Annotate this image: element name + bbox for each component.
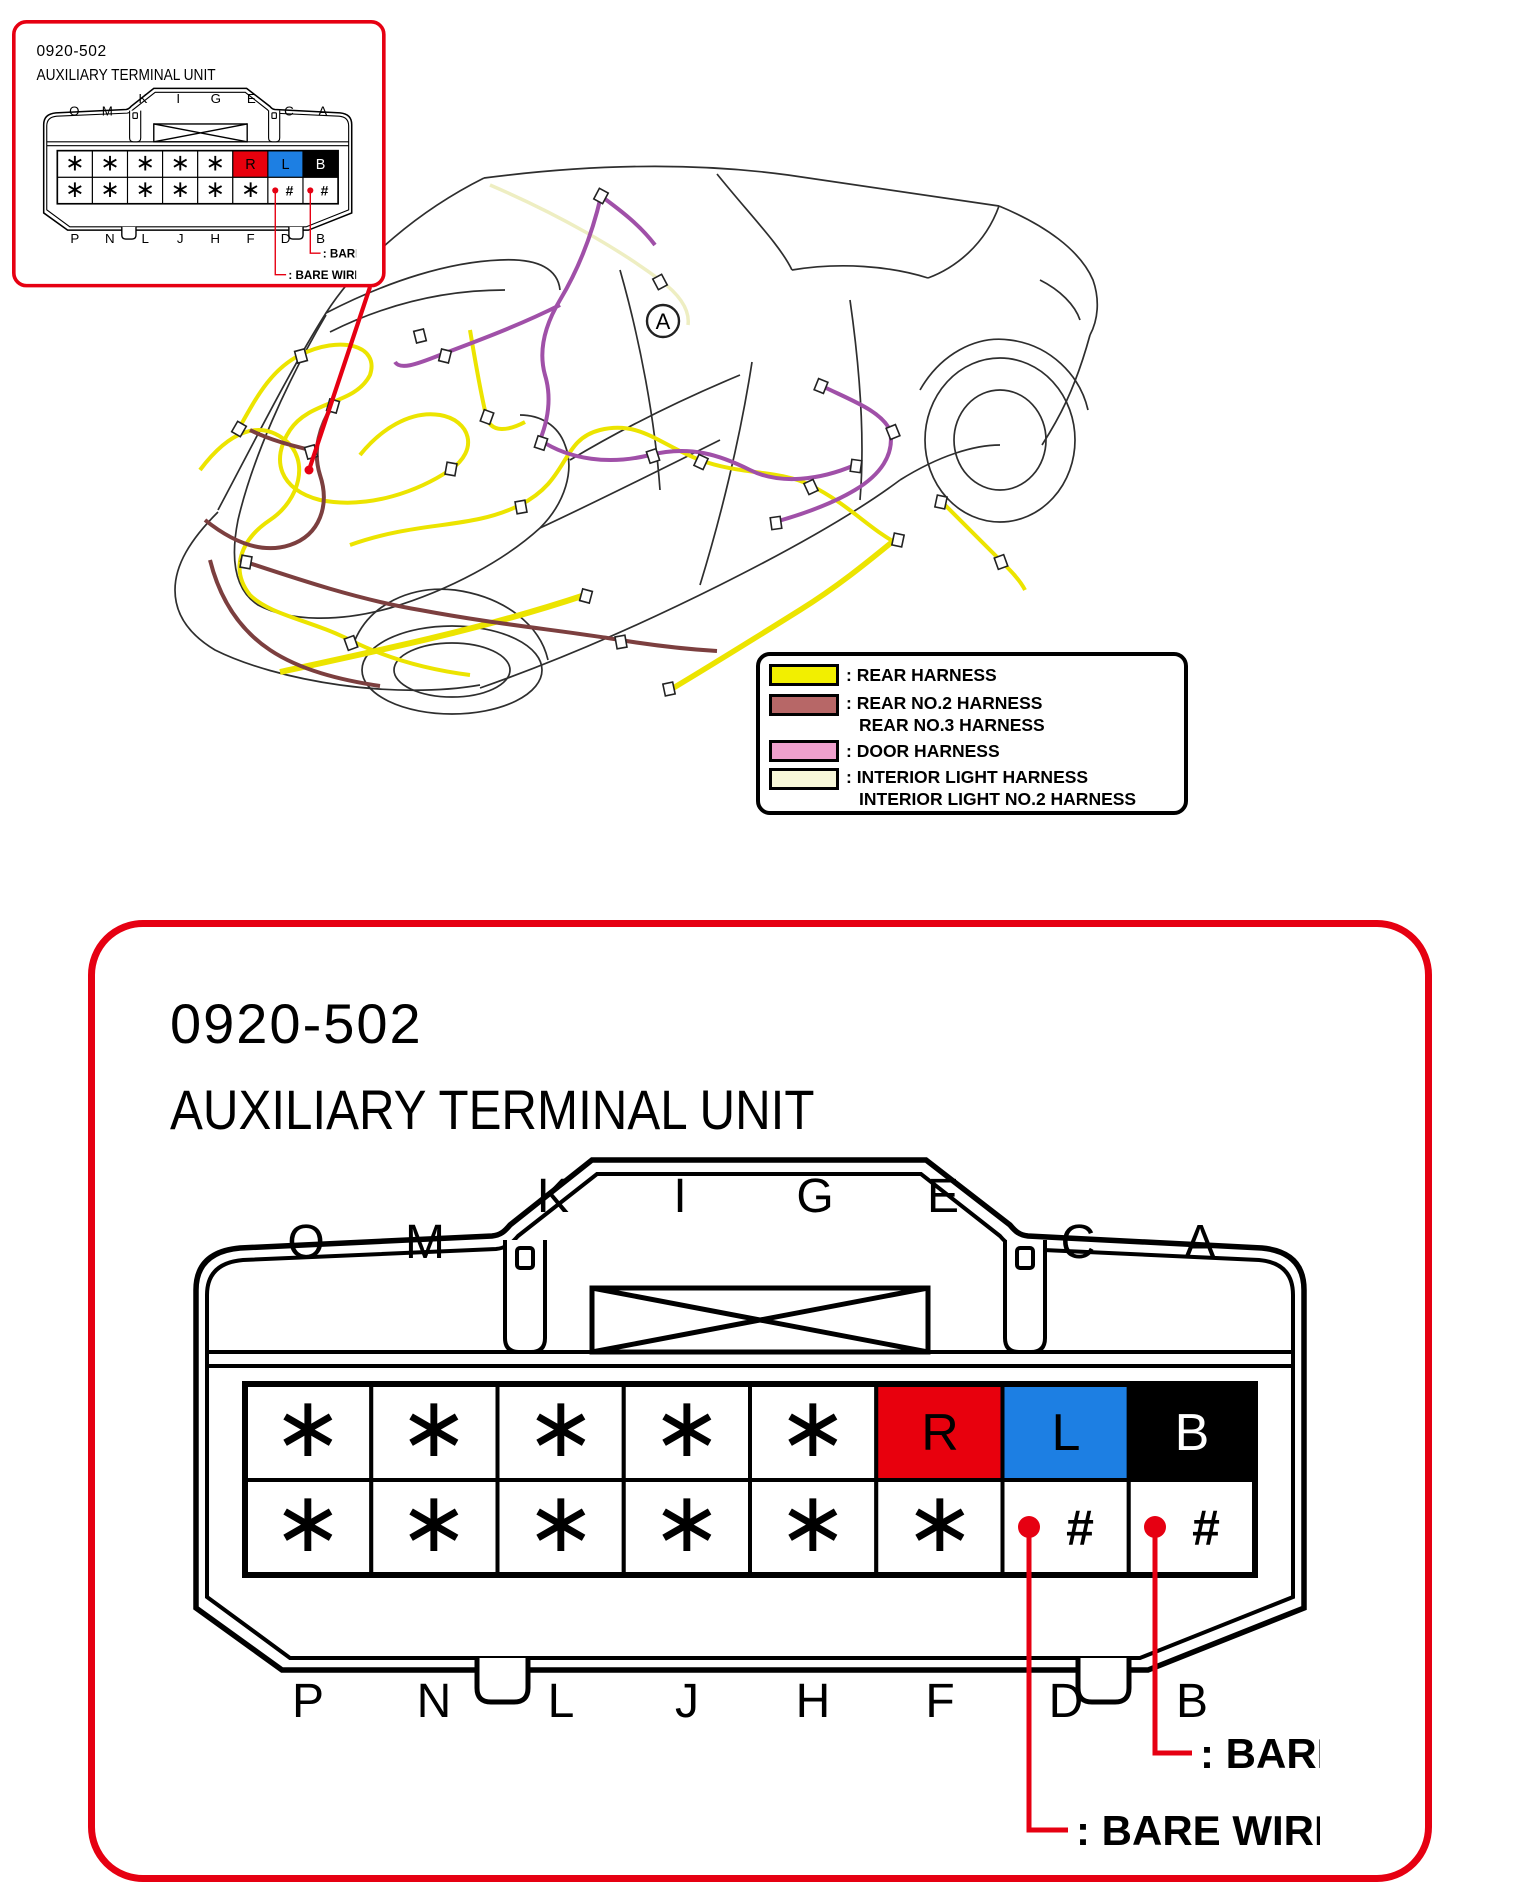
svg-text:L: L [548, 1675, 575, 1728]
legend-swatch-door-harness [769, 740, 839, 762]
svg-text:E: E [927, 1170, 959, 1223]
svg-text:∗: ∗ [399, 1473, 469, 1571]
svg-text:K: K [537, 1170, 569, 1223]
terminal-label-l: L [282, 157, 290, 173]
legend-label-rear-no2-harness: : REAR NO.2 HARNESS [846, 692, 1042, 714]
svg-text:A: A [1184, 1216, 1216, 1269]
svg-text:F: F [925, 1675, 954, 1728]
bare-wire-note-d: : BARE WIRE [1076, 1807, 1320, 1854]
svg-text:#: # [321, 182, 329, 198]
callout-a-label: A [656, 309, 671, 334]
svg-text:∗: ∗ [399, 1378, 469, 1476]
svg-text:O: O [287, 1216, 324, 1269]
svg-text:∗: ∗ [170, 149, 190, 177]
bare-wire-note-b: : BARE WIRE [1200, 1730, 1320, 1777]
svg-text:B: B [316, 231, 325, 246]
terminal-label-b: B [1175, 1404, 1210, 1462]
svg-text:P: P [292, 1675, 324, 1728]
svg-text:∗: ∗ [905, 1473, 975, 1571]
rear-no2-harness-path [205, 405, 717, 686]
auxiliary-terminal-unit-panel: 0920-502 AUXILIARY TERMINAL UNIT [12, 20, 386, 287]
legend-swatch-rear-harness [769, 664, 839, 686]
svg-text:J: J [675, 1675, 699, 1728]
svg-text:∗: ∗ [526, 1473, 596, 1571]
bare-wire-note-d: : BARE WIRE [288, 269, 356, 282]
svg-text:C: C [1061, 1216, 1096, 1269]
legend-label-interior-light-harness: : INTERIOR LIGHT HARNESS [846, 766, 1088, 788]
terminal-label-l: L [1052, 1404, 1081, 1462]
unit-code: 0920-502 [36, 41, 106, 59]
bare-wire-dot-d [1018, 1516, 1040, 1538]
terminal-grid: ∗ ∗ ∗ ∗ ∗ R L B ∗ ∗ ∗ ∗ ∗ ∗ # # [57, 149, 338, 204]
terminal-label-r: R [245, 157, 255, 173]
svg-text:∗: ∗ [273, 1473, 343, 1571]
svg-text:F: F [246, 231, 254, 246]
svg-text:∗: ∗ [135, 149, 155, 177]
svg-text:∗: ∗ [65, 175, 85, 203]
svg-text:∗: ∗ [100, 175, 120, 203]
svg-text:N: N [105, 231, 115, 246]
svg-text:D: D [281, 231, 291, 246]
svg-text:G: G [211, 91, 221, 106]
svg-text:C: C [284, 104, 294, 119]
svg-text:∗: ∗ [135, 175, 155, 203]
connector-pinout-diagram: ∗ ∗ ∗ ∗ ∗ R L B ∗ ∗ ∗ ∗ ∗ ∗ # # O [34, 80, 356, 289]
svg-text:∗: ∗ [778, 1473, 848, 1571]
svg-text:I: I [176, 91, 180, 106]
svg-text:#: # [1066, 1500, 1094, 1556]
svg-text:∗: ∗ [652, 1378, 722, 1476]
svg-text:M: M [405, 1216, 445, 1269]
unit-code: 0920-502 [170, 991, 423, 1056]
bare-wire-dot-d [272, 187, 278, 193]
legend-label-rear-harness: : REAR HARNESS [846, 664, 997, 686]
interior-light-harness-path [490, 185, 688, 325]
legend-label-interior-light-no2-harness: INTERIOR LIGHT NO.2 HARNESS [859, 788, 1136, 810]
svg-text:E: E [247, 91, 256, 106]
bare-wire-note-b: : BARE WIRE [323, 247, 356, 260]
svg-text:O: O [69, 104, 79, 119]
terminal-label-b: B [316, 157, 326, 173]
legend-label-door-harness: : DOOR HARNESS [846, 740, 1000, 762]
door-harness-path [395, 196, 891, 522]
svg-text:M: M [102, 104, 113, 119]
bare-wire-dot-b [1144, 1516, 1166, 1538]
harness-color-legend: : REAR HARNESS : REAR NO.2 HARNESS REAR … [756, 652, 1188, 815]
bare-wire-dot-b [307, 187, 313, 193]
svg-text:∗: ∗ [65, 149, 85, 177]
legend-label-rear-no3-harness: REAR NO.3 HARNESS [859, 714, 1045, 736]
auxiliary-terminal-unit-panel-mini: 0920-502 AUXILIARY TERMINAL UNIT [12, 20, 386, 287]
svg-text:#: # [1192, 1500, 1220, 1556]
svg-text:#: # [286, 182, 294, 198]
svg-text:P: P [70, 231, 79, 246]
svg-text:G: G [796, 1170, 833, 1223]
svg-text:A: A [318, 104, 327, 119]
svg-text:∗: ∗ [652, 1473, 722, 1571]
terminal-grid: ∗ ∗ ∗ ∗ ∗ R L B ∗ ∗ ∗ ∗ ∗ ∗ # # [245, 1378, 1255, 1575]
svg-text:∗: ∗ [241, 175, 261, 203]
svg-text:N: N [417, 1675, 452, 1728]
svg-text:∗: ∗ [273, 1378, 343, 1476]
location-leader-line [305, 287, 371, 475]
callout-a: A [647, 305, 679, 337]
legend-swatch-interior-light-harness [769, 768, 839, 790]
svg-text:L: L [141, 231, 148, 246]
svg-text:I: I [673, 1170, 686, 1223]
svg-text:∗: ∗ [526, 1378, 596, 1476]
svg-text:∗: ∗ [170, 175, 190, 203]
svg-text:D: D [1049, 1675, 1084, 1728]
svg-text:J: J [177, 231, 184, 246]
svg-text:∗: ∗ [205, 175, 225, 203]
svg-text:∗: ∗ [100, 149, 120, 177]
svg-text:B: B [1176, 1675, 1208, 1728]
auxiliary-terminal-unit-panel: 0920-502 AUXILIARY TERMINAL UNIT [88, 920, 1432, 1882]
svg-text:H: H [796, 1675, 831, 1728]
svg-text:H: H [210, 231, 220, 246]
terminal-label-r: R [921, 1404, 959, 1462]
svg-text:∗: ∗ [205, 149, 225, 177]
svg-text:K: K [138, 91, 147, 106]
connector-pinout-diagram: ∗ ∗ ∗ ∗ ∗ R L B ∗ ∗ ∗ ∗ ∗ ∗ # # O [160, 1130, 1320, 1880]
legend-swatch-rear-no2-harness [769, 694, 839, 716]
rear-harness-path [200, 330, 1025, 690]
service-manual-page: A : REAR HARNESS : REAR NO.2 HARNESS REA… [0, 0, 1518, 1902]
svg-text:∗: ∗ [778, 1378, 848, 1476]
